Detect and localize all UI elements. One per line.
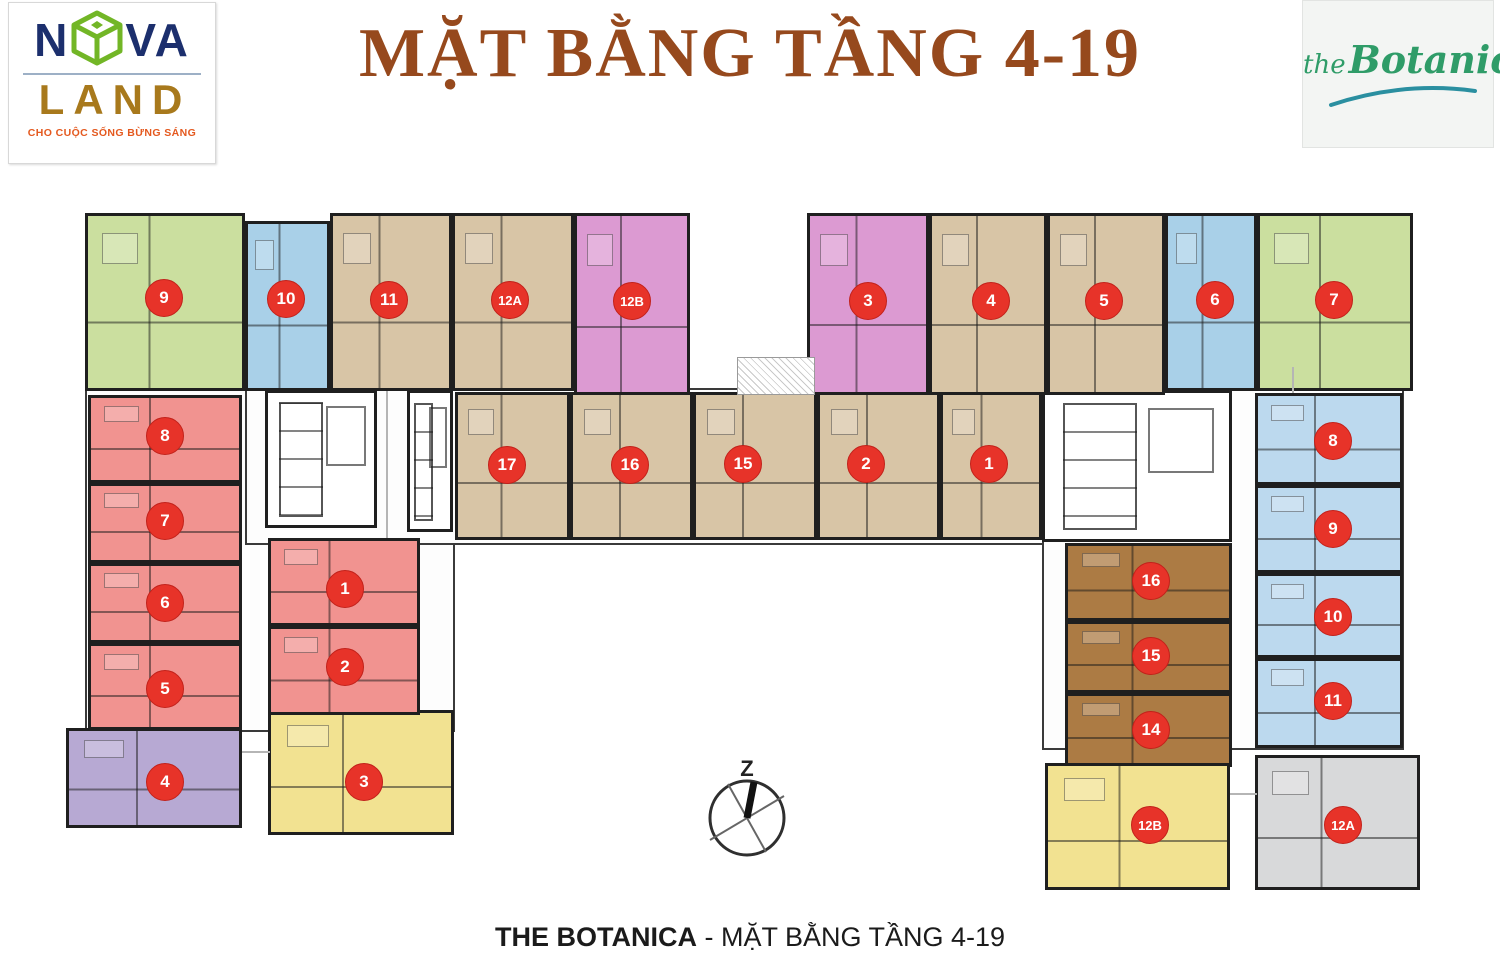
unit-left-4: 4 (66, 728, 242, 828)
unit-badge-top-3: 3 (849, 282, 887, 320)
unit-mid-17: 17 (455, 392, 570, 540)
unit-center-2: 2 (268, 626, 420, 715)
unit-badge-top-12A: 12A (491, 281, 529, 319)
unit-right-16: 16 (1065, 543, 1232, 621)
unit-top-9: 9 (85, 213, 245, 391)
unit-mid-1: 1 (940, 392, 1042, 540)
page: N VA LAND CHO CUỘC SỐNG BỪNG SÁNG MẶT BẰ… (0, 0, 1500, 977)
unit-badge-mid-15: 15 (724, 445, 762, 483)
unit-badge-top-10: 10 (267, 280, 305, 318)
unit-badge-right-10: 10 (1314, 598, 1352, 636)
unit-top-5: 5 (1047, 213, 1165, 395)
unit-badge-top-4: 4 (972, 282, 1010, 320)
unit-badge-left-8: 8 (146, 417, 184, 455)
unit-left-5: 5 (88, 643, 242, 730)
unit-badge-top-5: 5 (1085, 282, 1123, 320)
unit-badge-mid-2: 2 (847, 445, 885, 483)
leader-line (242, 751, 270, 753)
unit-badge-top-11: 11 (370, 281, 408, 319)
leader-line (1230, 793, 1257, 795)
unit-badge-bottom-12A: 12A (1324, 806, 1362, 844)
unit-right-10: 10 (1255, 573, 1403, 658)
unit-right-14: 14 (1065, 693, 1232, 767)
unit-mid-16: 16 (570, 392, 693, 540)
unit-top-7: 7 (1257, 213, 1413, 391)
unit-badge-left-4: 4 (146, 763, 184, 801)
unit-mid-15: 15 (693, 392, 817, 540)
footer-caption: THE BOTANICA - MẶT BẰNG TẦNG 4-19 (0, 922, 1500, 953)
unit-top-11: 11 (330, 213, 452, 391)
caption-floor-text: MẶT BẰNG TẦNG 4-19 (721, 922, 1005, 952)
unit-badge-right-14: 14 (1132, 711, 1170, 749)
unit-left-8: 8 (88, 395, 242, 483)
unit-center-1: 1 (268, 538, 420, 626)
unit-badge-right-9: 9 (1314, 510, 1352, 548)
unit-badge-center-1: 1 (326, 570, 364, 608)
unit-badge-left-5: 5 (146, 670, 184, 708)
unit-badge-top-7: 7 (1315, 281, 1353, 319)
elevator-core-left (265, 390, 377, 528)
unit-badge-mid-17: 17 (488, 446, 526, 484)
unit-badge-center-2: 2 (326, 648, 364, 686)
unit-left-3: 3 (268, 710, 454, 835)
unit-right-11: 11 (1255, 658, 1403, 748)
unit-top-12B: 12B (574, 213, 690, 398)
unit-right-15: 15 (1065, 621, 1232, 693)
unit-bottom-12A: 12A (1255, 755, 1420, 890)
unit-badge-right-8: 8 (1314, 422, 1352, 460)
unit-badge-left-7: 7 (146, 502, 184, 540)
unit-right-8: 8 (1255, 393, 1403, 485)
unit-badge-top-9: 9 (145, 279, 183, 317)
compass-label: Z (740, 756, 753, 781)
caption-separator: - (697, 922, 721, 952)
unit-badge-top-6: 6 (1196, 281, 1234, 319)
unit-badge-left-6: 6 (146, 584, 184, 622)
leader-line (1292, 367, 1294, 393)
unit-top-10: 10 (245, 221, 330, 391)
elevator-shaft-strip (407, 390, 453, 532)
elevator-core-right (1042, 390, 1232, 542)
unit-top-4: 4 (929, 213, 1047, 395)
unit-mid-2: 2 (817, 392, 940, 540)
unit-right-9: 9 (1255, 485, 1403, 573)
void-hatch (737, 357, 815, 395)
unit-badge-right-16: 16 (1132, 562, 1170, 600)
caption-project-name: THE BOTANICA (495, 922, 697, 952)
unit-top-12A: 12A (452, 213, 574, 391)
unit-bottom-12B: 12B (1045, 763, 1230, 890)
unit-badge-right-11: 11 (1314, 682, 1352, 720)
unit-top-3: 3 (807, 213, 929, 395)
compass: Z (702, 756, 792, 865)
unit-badge-bottom-12B: 12B (1131, 806, 1169, 844)
unit-badge-left-3: 3 (345, 763, 383, 801)
unit-left-7: 7 (88, 483, 242, 563)
unit-top-6: 6 (1165, 213, 1257, 391)
unit-badge-mid-1: 1 (970, 445, 1008, 483)
unit-badge-top-12B: 12B (613, 282, 651, 320)
leader-line (386, 391, 388, 538)
unit-left-6: 6 (88, 563, 242, 643)
unit-badge-right-15: 15 (1132, 637, 1170, 675)
unit-badge-mid-16: 16 (611, 446, 649, 484)
